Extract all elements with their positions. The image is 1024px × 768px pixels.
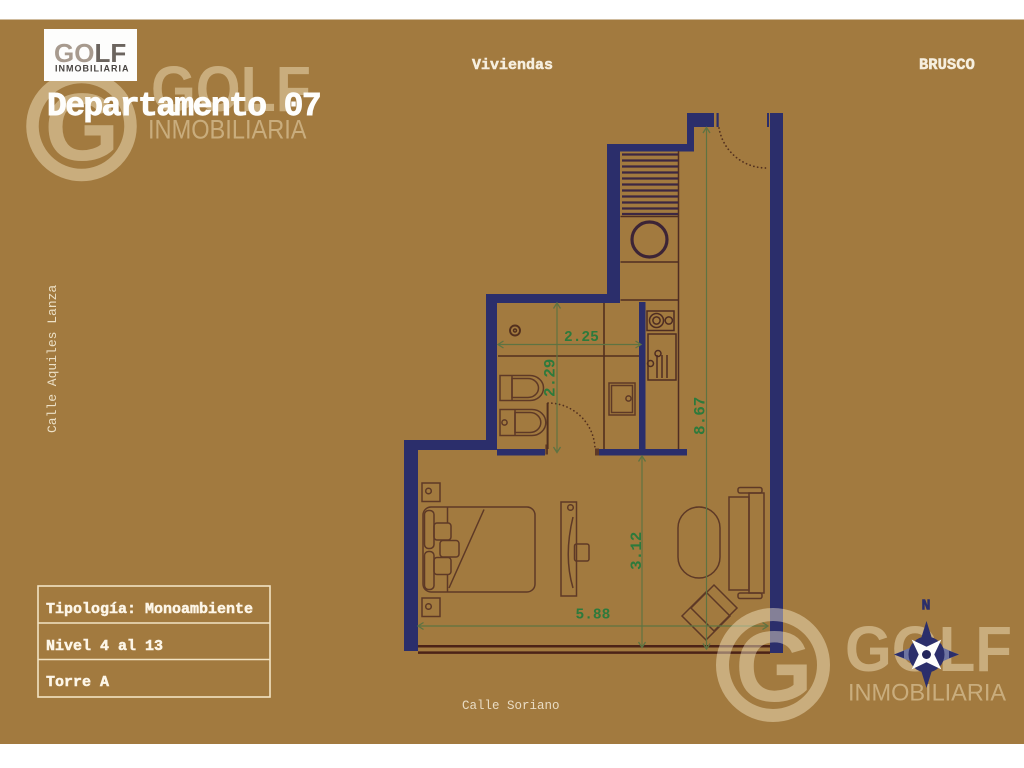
- svg-text:2.29: 2.29: [542, 359, 560, 397]
- svg-text:8.67: 8.67: [692, 397, 710, 435]
- svg-text:N: N: [922, 598, 931, 615]
- svg-text:INMOBILIARIA: INMOBILIARIA: [55, 64, 130, 74]
- svg-text:Calle Aquiles Lanza: Calle Aquiles Lanza: [45, 285, 60, 433]
- svg-text:Nivel 4 al 13: Nivel 4 al 13: [46, 638, 163, 655]
- svg-text:2.25: 2.25: [564, 330, 599, 346]
- svg-text:3.12: 3.12: [628, 532, 646, 570]
- svg-text:Viviendas: Viviendas: [472, 57, 553, 74]
- svg-text:5.88: 5.88: [576, 608, 611, 624]
- svg-text:G: G: [735, 611, 813, 723]
- svg-text:Tipología: Monoambiente: Tipología: Monoambiente: [46, 601, 253, 618]
- svg-text:Departamento 07: Departamento 07: [47, 88, 320, 125]
- svg-text:Calle Soriano: Calle Soriano: [462, 699, 560, 713]
- svg-text:BRUSCO: BRUSCO: [919, 56, 975, 74]
- svg-text:Torre A: Torre A: [46, 674, 109, 691]
